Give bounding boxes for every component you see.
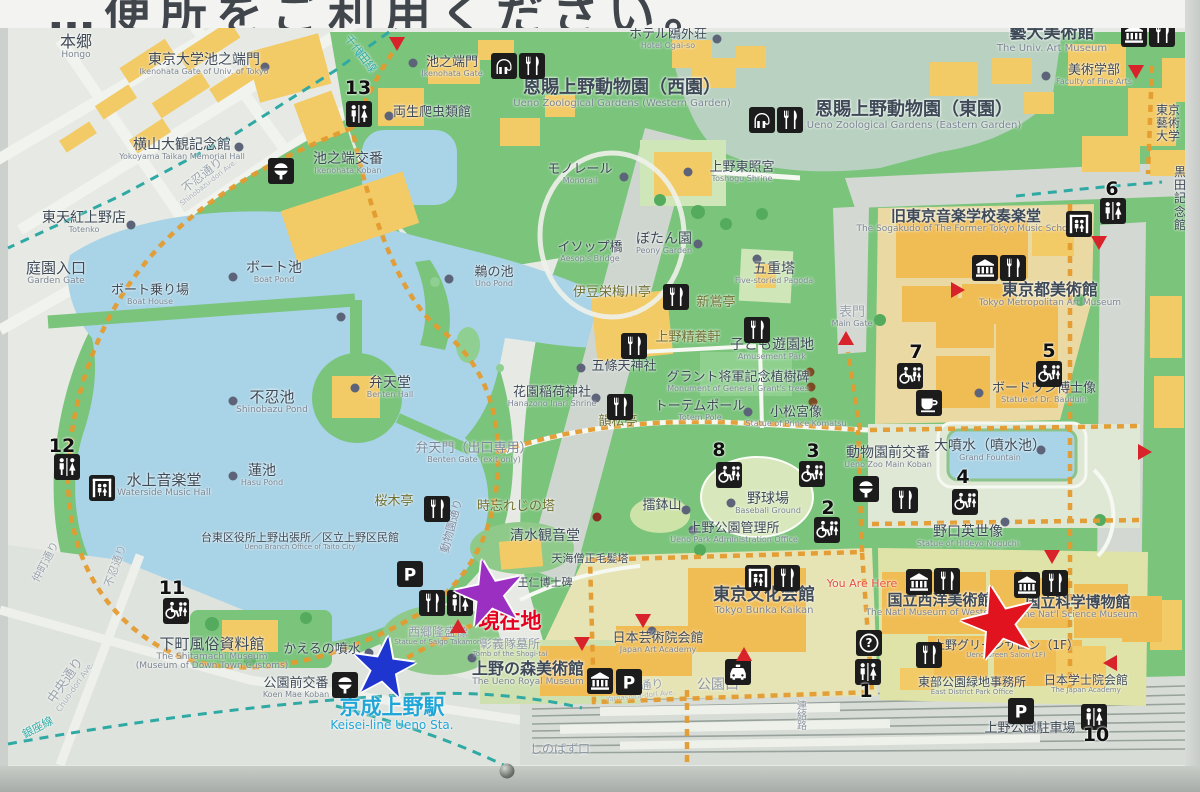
label-en: Monorail (547, 177, 612, 186)
label-en: Benten Hall (367, 391, 414, 400)
label-en: The Ueno Royal Museum (472, 678, 584, 688)
concert-hall-icon-glyph (90, 476, 114, 500)
sign-bolt (500, 764, 515, 779)
label-renrakuro: 連絡路 (795, 700, 806, 730)
label-en: Aesop's Bridge (557, 255, 622, 264)
label-jp: 新鴬亭 (696, 296, 735, 310)
label-japan-academy: 日本学士院会館The Japan Academy (1044, 674, 1128, 695)
accessible-toilet-icon-glyph (717, 463, 741, 487)
sign-right-edge (1185, 0, 1200, 792)
restaurant-icon-glyph (1001, 256, 1025, 280)
label-jp: 両生爬虫類館 (393, 106, 471, 120)
poi-dot (694, 240, 703, 249)
label-en: Statue of Hideyo Noguchi (917, 540, 1019, 549)
label-aesop-bridge: イソップ橋Aesop's Bridge (557, 241, 622, 264)
accessible-toilet-icon-glyph (164, 599, 188, 623)
label-zoo-west: 恩賜上野動物園（西園）Ueno Zoological Gardens (West… (513, 78, 730, 109)
poi-dot (445, 275, 454, 284)
poi-dot (351, 384, 360, 393)
label-jp: 上野精養軒 (655, 331, 720, 345)
label-boat-house: ボート乗り場Boat House (111, 284, 189, 307)
accessible-toilet-icon (897, 363, 923, 389)
label-jp: 五條天神社 (591, 360, 656, 374)
accessible-toilet-icon (1036, 361, 1062, 387)
label-en: Hanazono Inari Shrine (508, 400, 597, 409)
restaurant-icon-glyph (420, 591, 444, 615)
label-jp: 天海僧正毛髪塔 (552, 553, 629, 565)
label-en: Five-storied Pagoda (735, 277, 813, 286)
current-location-star: ★ (441, 541, 536, 643)
museum-icon-glyph (973, 256, 997, 280)
label-zoo-koban: 動物園前交番Ueno Zoo Main Koban (844, 446, 932, 470)
label-monorail: モノレールMonorail (547, 163, 612, 186)
poi-dot (577, 364, 586, 373)
label-en: Benten Gate (exit only) (415, 456, 532, 465)
koban-icon (853, 476, 879, 502)
toilet-icon-glyph (347, 102, 371, 126)
restaurant-icon-glyph (893, 488, 917, 512)
label-totem-pole: トーテムポールTotem Pole (655, 400, 746, 423)
label-en: Statue of Prince Komatsu (746, 420, 847, 429)
label-baseball: 野球場Baseball Ground (735, 492, 801, 516)
label-en: East District Park Office (918, 689, 1026, 697)
restaurant-icon (607, 394, 633, 420)
label-amusement-park: 子ども遊園地Amusement Park (730, 338, 814, 362)
restaurant-icon (744, 317, 770, 343)
sign-title: …便所をご利用ください。 (48, 0, 720, 28)
poi-dot (1042, 72, 1051, 81)
restaurant-icon (1000, 255, 1026, 281)
label-en: Statue of Dr. Bauduin (992, 396, 1096, 405)
label-hongo: 本郷Hongo (60, 33, 92, 60)
label-en: Ikenohata Gate (421, 70, 482, 79)
restaurant-icon-glyph (778, 108, 802, 132)
map-number-3: 3 (806, 440, 819, 462)
koban-icon-glyph (854, 477, 878, 501)
accessible-toilet-icon-glyph (953, 490, 977, 514)
toilet-icon-glyph (1101, 199, 1125, 223)
cafe-icon-glyph (917, 391, 941, 415)
label-seiyoken: 上野精養軒 (655, 331, 720, 345)
label-en: Totem Pole (655, 414, 746, 423)
accessible-toilet-icon-glyph (800, 462, 824, 486)
label-tokyo-geidai: 東京藝術大学 (1152, 104, 1184, 144)
label-shitamachi: 下町風俗資料館The Shitamachi Museum (Museum of … (136, 636, 289, 672)
label-shinobazu-dori-s: 不忍通り (103, 543, 129, 588)
label-hotel-ogaiso: ホテル鴎外荘Hotel Ogai-so (629, 28, 707, 51)
park-map-sign-photo: 本郷Hongo東京大学池之端門Ikenohata Gate of Univ. o… (0, 0, 1200, 792)
label-jp: 伊豆栄梅川亭 (573, 286, 651, 300)
map-number-10: 10 (1083, 724, 1109, 746)
sign-bottom-edge (0, 766, 1200, 792)
label-main-gate: 表門Main Gate (832, 306, 873, 329)
label-en: The Sogakudo of The Former Tokyo Music S… (856, 225, 1075, 235)
concert-hall-icon-glyph (746, 566, 770, 590)
label-en: Boat House (111, 298, 189, 307)
accessible-toilet-icon (716, 462, 742, 488)
label-ikenohata-gate: 池之端門Ikenohata Gate (421, 56, 482, 79)
label-you-are-here: You Are Here (827, 578, 898, 590)
label-en: Peony Garden (636, 247, 692, 256)
taxi-icon (725, 659, 751, 685)
label-shinobazu-exit: しのばず口 (530, 743, 590, 756)
accessible-toilet-icon (952, 489, 978, 515)
restaurant-icon-glyph (745, 318, 769, 342)
restaurant-icon-glyph (520, 54, 544, 78)
concert-hall-icon (745, 565, 771, 591)
poi-dot (682, 506, 691, 515)
label-en: Ueno Zoo Main Koban (844, 461, 932, 470)
zoo-elephant-icon (491, 53, 517, 79)
parking-icon: P (397, 561, 423, 587)
label-peony-garden: ぼたん園Peony Garden (636, 232, 692, 256)
information-icon-glyph: ? (857, 631, 881, 655)
label-art-academy: 日本芸術院会館Japan Art Academy (612, 632, 703, 655)
label-en: Boat Pond (246, 276, 302, 285)
label-jp: しのばず口 (530, 743, 590, 756)
label-tobikan: 東京都美術館Tokyo Metropolitan Art Museum (979, 281, 1121, 308)
label-jp: 上野公園駐車場 (984, 722, 1075, 736)
label-gojoten: 五條天神社 (591, 360, 656, 374)
gate-triangle-icon (736, 647, 752, 661)
concert-hall-icon (1066, 211, 1092, 237)
gate-triangle-icon (1103, 655, 1117, 671)
map-overlay: 本郷Hongo東京大学池之端門Ikenohata Gate of Univ. o… (0, 0, 1200, 792)
label-shinobazu-pond: 不忍池Shinobazu Pond (236, 389, 308, 415)
map-number-5: 5 (1042, 340, 1055, 362)
label-en: Grand Fountain (934, 454, 1046, 463)
label-en: Totenko (42, 226, 126, 235)
label-jp: 上野の森美術館 (472, 660, 584, 678)
label-noguchi-statue: 野口英世像Statue of Hideyo Noguchi (917, 525, 1019, 549)
label-jp: 桜木亭 (374, 495, 413, 509)
label-jp: 旧東京音楽学校奏楽堂 (856, 208, 1075, 225)
label-jp: You Are Here (827, 578, 898, 590)
label-en: Ikenohata Koban (313, 167, 383, 176)
parking-icon-glyph: P (398, 562, 422, 586)
museum-icon-glyph (907, 570, 931, 594)
svg-text:P: P (1015, 703, 1027, 723)
label-jp: 恩賜上野動物園（東園） (807, 100, 1021, 120)
label-komatsu-statue: 小松宮像Statue of Prince Komatsu (746, 406, 847, 429)
poi-dot (229, 273, 238, 282)
label-jp: 擂鉢山 (642, 499, 681, 513)
label-totenko: 東天紅上野店Totenko (42, 211, 126, 235)
toilet-icon (54, 454, 80, 480)
parking-icon-glyph: P (617, 670, 641, 694)
label-chiyoda-line: 千代田線 (342, 33, 379, 75)
label-en: Koen Mae Koban (263, 691, 329, 700)
label-hanazono: 花園稲荷神社Hanazono Inari Shrine (508, 386, 597, 409)
restaurant-icon (892, 487, 918, 513)
label-jp: 本郷 (60, 33, 92, 51)
label-chuo-dori: 中央通りChuo-dori Ave. (44, 653, 97, 714)
label-sogakudo: 旧東京音楽学校奏楽堂The Sogakudo of The Former Tok… (856, 208, 1075, 234)
poi-dot (409, 59, 418, 68)
label-en: Tokyo Metropolitan Art Museum (979, 299, 1121, 309)
accessible-toilet-icon (163, 598, 189, 624)
label-en: The Shitamachi Museum (Museum of Down To… (136, 653, 289, 673)
label-park-parking: 上野公園駐車場 (984, 722, 1075, 736)
parking-icon: P (616, 669, 642, 695)
label-en: Faculty of Fine Arts (1056, 78, 1132, 87)
museum-icon (587, 668, 613, 694)
sign-top-edge: …便所をご利用ください。 (0, 0, 1200, 28)
restaurant-icon (916, 642, 942, 668)
accessible-toilet-icon-glyph (1037, 362, 1061, 386)
label-en: Ikenohata Gate of Univ. of Tokyo (139, 68, 268, 77)
svg-text:P: P (623, 674, 635, 694)
information-icon: ? (856, 630, 882, 656)
poi-dot (127, 221, 136, 230)
poi-dot (593, 513, 602, 522)
accessible-toilet-icon (799, 461, 825, 487)
label-jp: 下町風俗資料館 (136, 636, 289, 653)
label-en: Uno Pond (474, 280, 513, 289)
label-jp: 不忍池 (236, 389, 308, 406)
label-en: The Univ. Art Museum (997, 43, 1107, 54)
restaurant-icon-glyph (917, 643, 941, 667)
gate-triangle-icon (1091, 236, 1107, 250)
label-toshogu: 上野東照宮Toshogu Shrine (709, 161, 774, 184)
label-en: Toshogu Shrine (709, 175, 774, 184)
parking-icon: P (1008, 698, 1034, 724)
label-en: Waterside Music Hall (117, 489, 211, 499)
map-number-11: 11 (159, 577, 185, 599)
zoo-elephant-icon-glyph (492, 54, 516, 78)
map-number-7: 7 (909, 341, 922, 363)
label-tokiwasureji: 時忘れじの塔 (477, 500, 555, 514)
label-jp: 不忍通り (103, 543, 129, 588)
concert-hall-icon (89, 475, 115, 501)
label-jp: 千代田線 (342, 33, 379, 75)
label-en: Amusement Park (730, 353, 814, 362)
restaurant-icon-glyph (608, 395, 632, 419)
label-en: Ueno Zoological Gardens (Eastern Garden) (807, 120, 1021, 131)
label-kiyomizu: 清水観音堂 (510, 529, 580, 544)
label-en: Tomb of the Shogi-tai (473, 651, 548, 659)
museum-icon (972, 255, 998, 281)
poi-dot (337, 313, 346, 322)
label-suribachi: 擂鉢山 (642, 499, 681, 513)
parking-icon-glyph: P (1009, 699, 1033, 723)
restaurant-icon (663, 284, 689, 310)
label-koen-mae-koban: 公園前交番Koen Mae Koban (263, 677, 329, 700)
label-en: Monument of General Grant's trees (666, 385, 809, 394)
concert-hall-icon-glyph (1067, 212, 1091, 236)
accessible-toilet-icon-glyph (898, 364, 922, 388)
map-number-12: 12 (49, 435, 75, 457)
label-en: Hotel Ogai-so (629, 42, 707, 51)
label-tenkai-tower: 天海僧正毛髪塔 (552, 553, 629, 565)
label-jp: 仲町通り (30, 540, 61, 585)
cafe-icon (916, 390, 942, 416)
restaurant-icon-glyph (622, 334, 646, 358)
zoo-elephant-icon-glyph (750, 108, 774, 132)
poi-dot (620, 173, 629, 182)
accessible-toilet-icon (814, 517, 840, 543)
label-grand-fountain: 大噴水（噴水池）Grand Fountain (934, 439, 1046, 463)
poi-dot (229, 472, 238, 481)
label-taito-office: 台東区役所上野出張所／区立上野区民館Ueno Branch Office of … (201, 532, 399, 552)
restaurant-icon (621, 333, 647, 359)
label-faculty-fine-arts: 美術学部Faculty of Fine Arts (1056, 64, 1132, 87)
zoo-elephant-icon (749, 107, 775, 133)
svg-text:P: P (404, 566, 416, 586)
label-ikenohata-koban: 池之端交番Ikenohata Koban (313, 152, 383, 176)
accessible-toilet-icon-glyph (815, 518, 839, 542)
restaurant-icon-glyph (775, 566, 799, 590)
label-reptile-house: 両生爬虫類館 (393, 106, 471, 120)
map-number-4: 4 (956, 466, 969, 488)
label-en: Garden Gate (26, 277, 86, 287)
label-univ-tokyo-gate: 東京大学池之端門Ikenohata Gate of Univ. of Tokyo (139, 53, 268, 77)
gate-triangle-icon (1138, 444, 1152, 460)
label-benten-gate: 弁天門（出口専用）Benten Gate (exit only) (415, 442, 532, 465)
label-en: Ueno Branch Office of Taito City (201, 544, 399, 552)
label-nakamachi-dori: 仲町通り (30, 540, 61, 585)
map-number-1: 1 (859, 680, 872, 702)
restaurant-icon-glyph (1043, 571, 1067, 595)
label-en: Hongo (60, 51, 92, 61)
label-royal-museum: 上野の森美術館The Ueno Royal Museum (472, 660, 584, 687)
label-boat-pond: ボート池Boat Pond (246, 261, 302, 285)
label-jp: 時忘れじの塔 (477, 500, 555, 514)
label-en: Ueno Park Administration Office (670, 536, 798, 545)
gate-triangle-icon (951, 282, 965, 298)
label-jp: 庭園入口 (26, 260, 86, 277)
gate-triangle-icon (635, 614, 651, 628)
gate-triangle-icon (389, 37, 405, 51)
restaurant-icon (774, 565, 800, 591)
label-waterside-hall: 水上音楽堂Waterside Music Hall (117, 472, 211, 498)
label-en: The Japan Academy (1044, 687, 1128, 695)
label-grant-monument: グラント将軍記念植樹碑Monument of General Grant's t… (666, 371, 809, 394)
label-en: Shinobazu Pond (236, 406, 308, 416)
restaurant-icon (424, 496, 450, 522)
label-en: Baseball Ground (735, 507, 801, 516)
restaurant-icon (777, 107, 803, 133)
label-zoo-east: 恩賜上野動物園（東園）Ueno Zoological Gardens (East… (807, 100, 1021, 131)
label-shin-uguisu: 新鴬亭 (696, 296, 735, 310)
toilet-icon-glyph (55, 455, 79, 479)
restaurant-icon (419, 590, 445, 616)
gate-triangle-icon (1044, 550, 1060, 564)
label-jp: 水上音楽堂 (117, 472, 211, 489)
koban-icon-glyph (269, 159, 293, 183)
restaurant-icon-glyph (664, 285, 688, 309)
koban-icon (268, 158, 294, 184)
gate-triangle-icon (1128, 65, 1144, 79)
poi-dot (713, 35, 722, 44)
map-number-6: 6 (1105, 178, 1118, 200)
toilet-icon (346, 101, 372, 127)
museum-icon (906, 569, 932, 595)
label-en: Ueno Zoological Gardens (Western Garden) (513, 98, 730, 109)
poi-dot (684, 168, 693, 177)
label-en: Main Gate (832, 320, 873, 329)
label-jp: 銀座線 (21, 715, 56, 741)
label-benten-hall: 弁天堂Benten Hall (367, 376, 414, 400)
map-number-13: 13 (345, 77, 371, 99)
label-en: Keisei-line Ueno Sta. (330, 719, 453, 732)
taxi-icon-glyph (726, 660, 750, 684)
label-jp: 恩賜上野動物園（西園） (513, 78, 730, 98)
label-uno-pond: 鵜の池Uno Pond (474, 266, 513, 289)
label-jp: 清水観音堂 (510, 529, 580, 544)
restaurant-icon (1042, 570, 1068, 596)
svg-text:?: ? (866, 636, 873, 650)
label-pagoda: 五重塔Five-storied Pagoda (735, 262, 813, 286)
label-jp: 東京藝術大学 (1152, 104, 1184, 144)
label-hasu-pond: 蓮池Hasu Pond (241, 464, 283, 488)
label-garden-gate: 庭園入口Garden Gate (26, 260, 86, 286)
label-en: Tokyo Bunka Kaikan (713, 605, 815, 616)
label-izuei: 伊豆栄梅川亭 (573, 286, 651, 300)
keisei-station-star: ★ (343, 622, 425, 711)
label-sakuragi-tei: 桜木亭 (374, 495, 413, 509)
toilet-icon (1100, 198, 1126, 224)
label-en: Japan Art Academy (612, 646, 703, 655)
label-jp: 連絡路 (795, 700, 806, 730)
museum-icon-glyph (588, 669, 612, 693)
label-park-admin: 上野公園管理所Ueno Park Administration Office (670, 522, 798, 545)
label-geidai-museum: 藝大美術館The Univ. Art Museum (997, 24, 1107, 54)
label-en: Hasu Pond (241, 479, 283, 488)
map-number-8: 8 (712, 439, 725, 461)
restaurant-icon (519, 53, 545, 79)
label-ginza-line: 銀座線 (21, 715, 56, 741)
poi-dot (975, 389, 984, 398)
map-number-2: 2 (821, 497, 834, 519)
restaurant-icon-glyph (425, 497, 449, 521)
label-jp: 東京都美術館 (979, 281, 1121, 299)
gate-triangle-icon (838, 331, 854, 345)
gate-triangle-icon (574, 637, 590, 651)
